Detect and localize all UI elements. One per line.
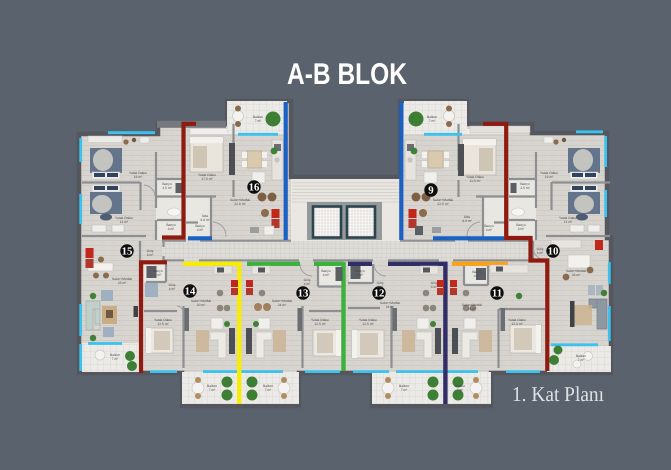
svg-text:24 m²: 24 m²: [278, 303, 287, 307]
svg-text:16 m²: 16 m²: [134, 175, 143, 179]
svg-text:16: 16: [249, 182, 260, 194]
svg-text:14: 14: [185, 286, 196, 298]
svg-text:7 m²: 7 m²: [265, 388, 272, 392]
svg-text:7 m²: 7 m²: [112, 357, 119, 361]
svg-text:9.9 m²: 9.9 m²: [462, 219, 472, 223]
svg-text:4 m²: 4 m²: [357, 273, 364, 277]
svg-text:4 m²: 4 m²: [377, 285, 384, 289]
svg-text:12.5 m²: 12.5 m²: [362, 322, 374, 326]
svg-text:9: 9: [428, 185, 434, 197]
svg-text:4 m²: 4 m²: [197, 228, 204, 232]
svg-text:20 m²: 20 m²: [197, 303, 206, 307]
svg-text:6 m²: 6 m²: [537, 251, 544, 255]
svg-text:4 m²: 4 m²: [155, 273, 162, 277]
svg-text:22.5 m²: 22.5 m²: [437, 202, 449, 206]
svg-text:4 m²: 4 m²: [474, 274, 481, 278]
svg-text:7 m²: 7 m²: [209, 388, 216, 392]
svg-text:4 m²: 4 m²: [304, 282, 311, 286]
svg-text:15: 15: [122, 246, 133, 258]
svg-text:7 m²: 7 m²: [457, 388, 464, 392]
svg-text:7 m²: 7 m²: [578, 358, 585, 362]
svg-text:A-B BLOK: A-B BLOK: [287, 58, 407, 91]
svg-text:25 m²: 25 m²: [118, 281, 127, 285]
svg-text:4 m²: 4 m²: [169, 287, 176, 291]
svg-text:4 m²: 4 m²: [168, 227, 175, 231]
svg-text:9.9 m²: 9.9 m²: [200, 218, 210, 222]
svg-text:19 m²: 19 m²: [545, 175, 554, 179]
svg-text:24 m²: 24 m²: [468, 307, 477, 311]
svg-text:12: 12: [374, 288, 385, 300]
svg-text:11.5 m²: 11.5 m²: [470, 179, 482, 183]
svg-text:12.5 m²: 12.5 m²: [157, 322, 169, 326]
svg-text:13: 13: [298, 288, 309, 300]
svg-text:17.5 m²: 17.5 m²: [201, 177, 213, 181]
svg-text:12.5 m²: 12.5 m²: [314, 322, 326, 326]
svg-text:6 m²: 6 m²: [147, 253, 154, 257]
svg-text:7 m²: 7 m²: [429, 119, 436, 123]
svg-text:7 m²: 7 m²: [255, 119, 262, 123]
svg-text:28 m²: 28 m²: [572, 273, 581, 277]
svg-text:3.5 m²: 3.5 m²: [520, 186, 530, 190]
svg-text:4 m²: 4 m²: [323, 273, 330, 277]
svg-text:12.3 m²: 12.3 m²: [511, 322, 523, 326]
svg-text:11: 11: [492, 288, 502, 300]
svg-text:4 m²: 4 m²: [486, 228, 493, 232]
svg-text:11 m²: 11 m²: [120, 220, 129, 224]
svg-text:22.6 m²: 22.6 m²: [234, 202, 246, 206]
svg-text:11 m²: 11 m²: [564, 220, 573, 224]
svg-text:4 m²: 4 m²: [431, 285, 438, 289]
svg-text:3.5 m²: 3.5 m²: [162, 186, 172, 190]
svg-text:4 m²: 4 m²: [518, 227, 525, 231]
svg-text:7 m²: 7 m²: [401, 388, 408, 392]
svg-text:1. Kat Planı: 1. Kat Planı: [512, 382, 604, 406]
svg-text:10: 10: [548, 246, 559, 258]
svg-text:24 m²: 24 m²: [386, 305, 395, 309]
